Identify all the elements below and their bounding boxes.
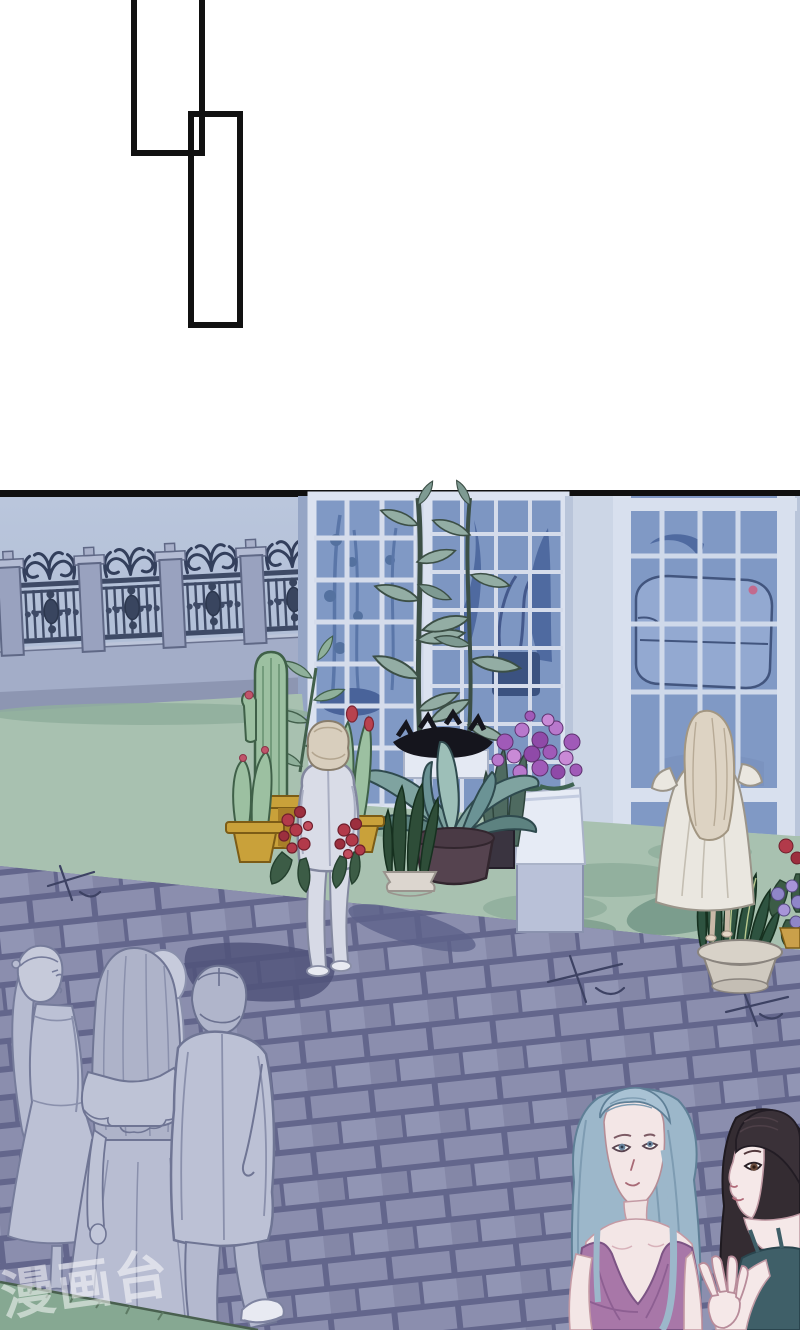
comic-page: 漫画台 xyxy=(0,0,800,1330)
comic-panel xyxy=(0,0,800,1330)
scene-svg xyxy=(0,0,800,1330)
woman-blue-hair xyxy=(569,1088,702,1330)
